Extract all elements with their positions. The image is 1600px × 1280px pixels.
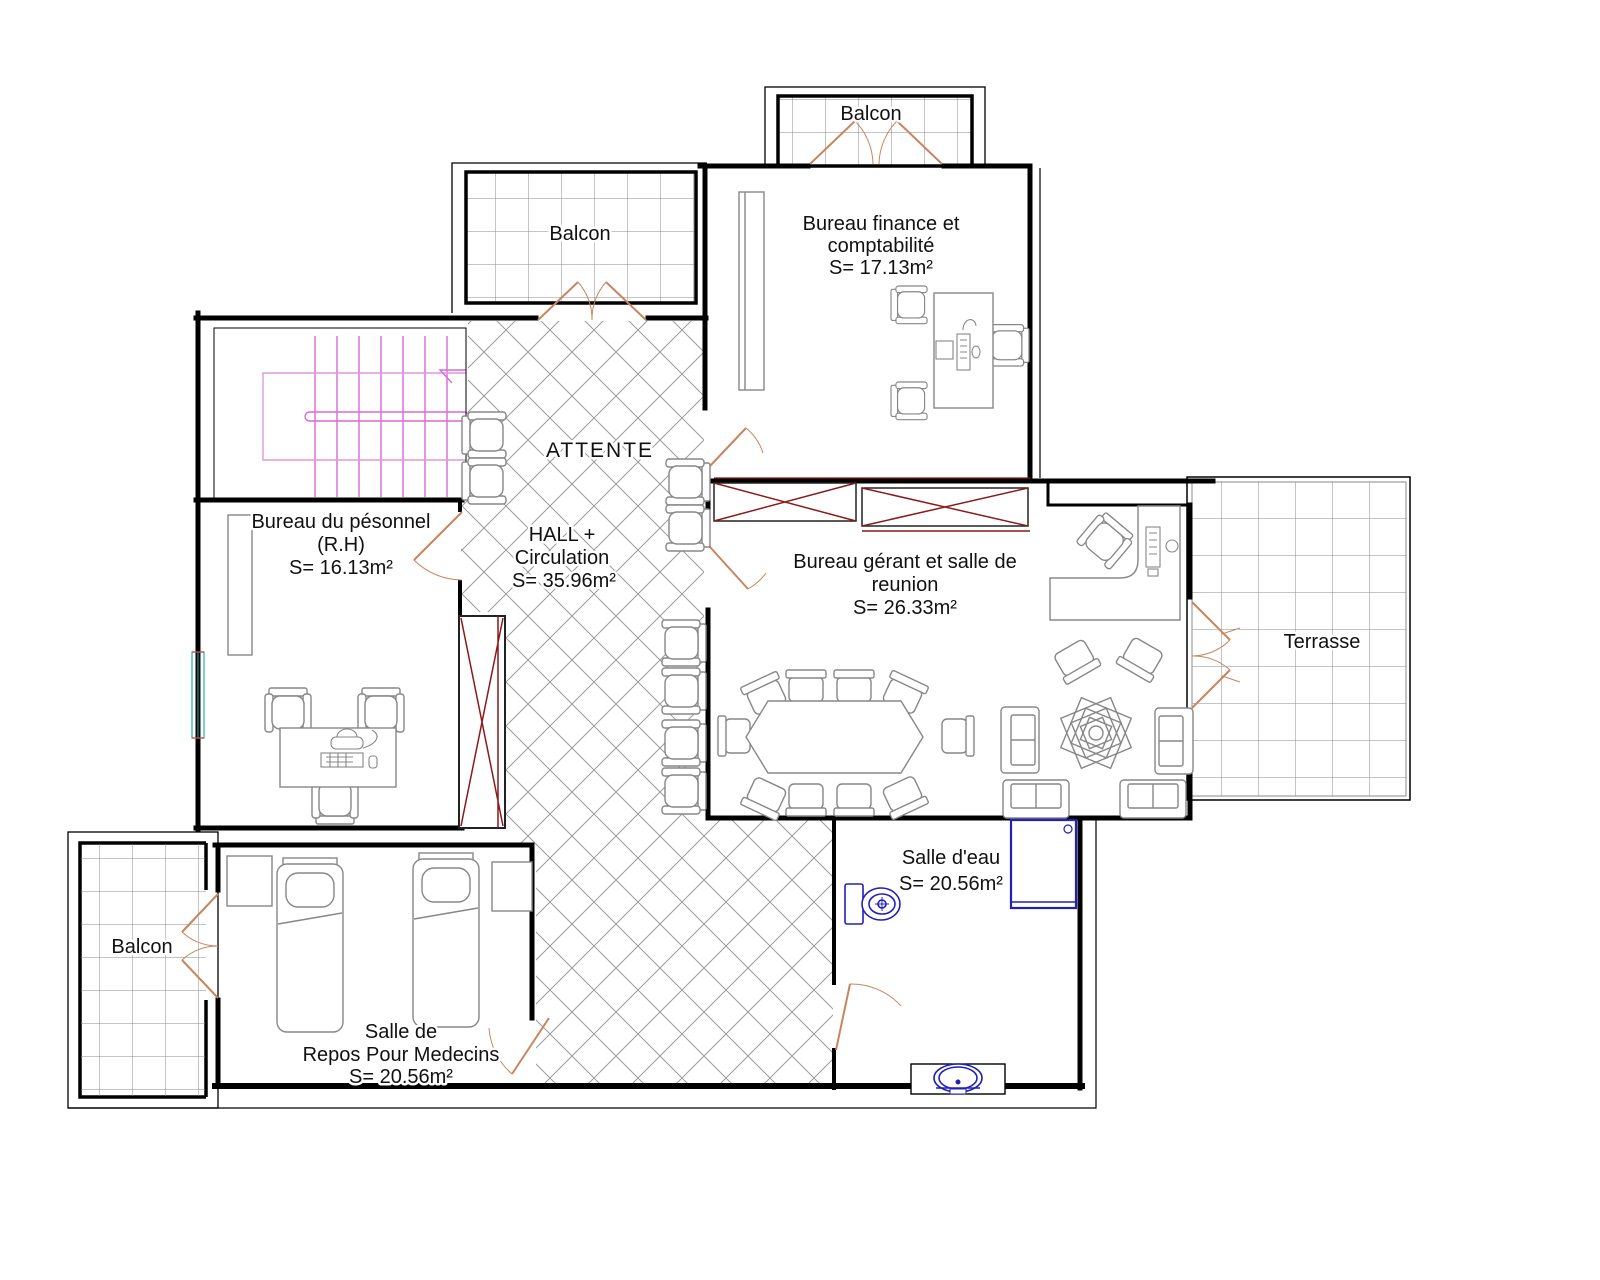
repos-furniture — [227, 853, 532, 1032]
bed — [413, 853, 479, 1027]
label-finance-area: S= 17.13m² — [829, 257, 933, 279]
duct-shaft — [459, 616, 505, 828]
balcony-top-tiles — [765, 87, 985, 166]
waiting-chair — [662, 768, 706, 814]
label-finance-1: Bureau finance et — [803, 213, 960, 235]
sofa — [1003, 780, 1069, 818]
sink — [911, 1064, 1005, 1094]
balcony-bottom-tiles — [68, 832, 218, 1108]
meeting-chair — [740, 775, 790, 821]
waiting-chair — [462, 412, 506, 458]
label-balcon-bottom: Balcon — [111, 936, 172, 958]
label-rh-area: S= 16.13m² — [289, 557, 393, 579]
meeting-chair — [786, 670, 826, 702]
stair-handrail — [305, 412, 469, 421]
label-salle-eau-area: S= 20.56m² — [899, 873, 1003, 895]
waiting-chair — [662, 668, 706, 714]
waiting-chair — [666, 459, 710, 505]
label-balcon-top: Balcon — [840, 103, 901, 125]
office-chair — [1076, 510, 1136, 570]
meeting-chair — [879, 774, 929, 820]
label-finance-2: comptabilité — [828, 235, 935, 257]
meeting-chair — [942, 716, 974, 756]
wardrobe — [228, 515, 252, 655]
meeting-chair — [786, 784, 826, 816]
label-repos-2: Repos Pour Medecins — [303, 1044, 500, 1066]
sofa — [1120, 780, 1186, 818]
label-gerant-2: reunion — [872, 574, 939, 596]
stair-direction-arrow — [440, 370, 466, 383]
label-salle-eau-1: Salle d'eau — [902, 847, 1000, 869]
label-balcon-upper-left: Balcon — [549, 223, 610, 245]
guest-chair — [1051, 637, 1102, 685]
conference-table — [746, 701, 923, 773]
visitor-chair — [358, 688, 404, 732]
nightstand — [492, 862, 532, 911]
staircase — [263, 336, 469, 497]
waiting-chair — [662, 720, 706, 766]
meeting-chair — [834, 670, 874, 702]
meeting-chair — [834, 784, 874, 816]
visitor-chair — [891, 286, 927, 324]
bed — [277, 858, 343, 1032]
label-hall-2: Circulation — [515, 547, 609, 569]
label-repos-1: Salle de — [365, 1021, 437, 1043]
window-rh — [192, 652, 204, 738]
stair-compartment-outline — [214, 328, 466, 500]
meeting-chair — [718, 716, 750, 756]
waiting-chair — [462, 458, 506, 504]
door-bureau-gerant — [710, 547, 766, 589]
label-gerant-area: S= 26.33m² — [853, 597, 957, 619]
shower — [1011, 820, 1076, 908]
office-chair — [989, 325, 1029, 366]
sofa — [1155, 708, 1193, 774]
star-coffee-table — [1061, 698, 1132, 769]
visitor-chair — [265, 688, 311, 732]
floor-plan-svg: Balcon Bureau finance et comptabilité S=… — [0, 0, 1600, 1280]
nightstand — [227, 856, 272, 906]
label-rh-1: Bureau du pésonnel — [251, 511, 430, 533]
wall-cabinet-2 — [862, 488, 1030, 531]
sofa — [1001, 707, 1039, 773]
door-salle-eau — [836, 984, 901, 1050]
label-hall-1: HALL + — [529, 524, 596, 546]
waiting-chair — [666, 505, 710, 551]
label-terrasse: Terrasse — [1284, 631, 1361, 653]
door-bureau-finance — [710, 428, 763, 466]
guest-chair — [1116, 635, 1167, 683]
label-repos-area: S= 20.56m² — [349, 1066, 453, 1088]
toilet — [845, 884, 900, 924]
bookshelf — [739, 192, 764, 390]
label-attente: ATTENTE — [546, 439, 654, 462]
label-gerant-1: Bureau gérant et salle de — [793, 551, 1017, 573]
floor-plan-page: Balcon Bureau finance et comptabilité S=… — [0, 0, 1600, 1280]
label-hall-area: S= 35.96m² — [512, 570, 616, 592]
visitor-chair — [891, 382, 927, 420]
waiting-chair — [662, 620, 706, 666]
label-rh-2: (R.H) — [317, 534, 365, 556]
